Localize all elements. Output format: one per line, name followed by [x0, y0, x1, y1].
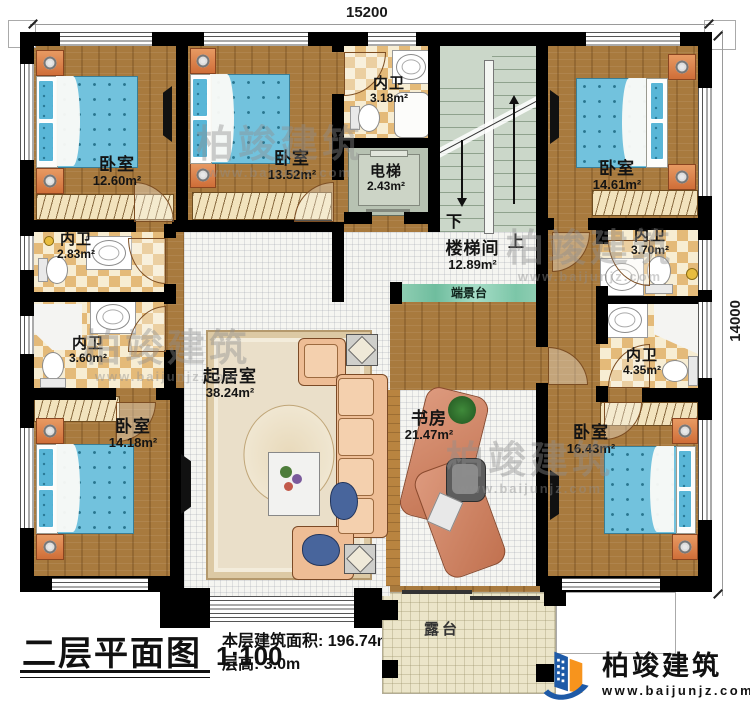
right-dimension-label: 14000	[727, 300, 744, 342]
wall	[176, 46, 188, 232]
room-label-bath-right2: 内卫 4.35m²	[606, 348, 678, 376]
wall	[354, 588, 382, 628]
brand-logo: 柏竣建筑 www.baijunjz.com	[540, 646, 750, 704]
nightstand	[672, 418, 698, 444]
nightstand	[672, 534, 698, 560]
person	[302, 534, 340, 566]
window	[698, 240, 712, 290]
flower-decor	[292, 474, 302, 484]
terrace-label: 露台	[424, 618, 494, 638]
nightstand	[36, 50, 64, 76]
terrace-outline-extension	[556, 592, 676, 654]
side-table	[344, 544, 376, 574]
nightstand	[190, 48, 216, 74]
pillow	[38, 80, 54, 120]
window	[20, 236, 34, 270]
platform-end-wall	[390, 282, 402, 304]
terrace-pillar	[382, 600, 398, 620]
room-label-bath-left2: 内卫 3.60m²	[56, 336, 120, 364]
wall	[600, 296, 700, 304]
wall	[596, 388, 604, 402]
nightstand	[36, 418, 64, 444]
room-label-bedroom-tl: 卧室 12.60m²	[82, 156, 152, 187]
side-table	[346, 334, 378, 366]
wall	[536, 383, 548, 586]
toilet	[647, 256, 671, 286]
window	[210, 596, 354, 624]
top-dimension-label: 15200	[346, 4, 388, 21]
pillow	[38, 489, 54, 528]
wardrobe	[592, 190, 698, 216]
platform-end-wall	[536, 282, 548, 304]
room-label-elevator: 电梯 2.43m²	[346, 164, 426, 192]
stair-down-arrowhead	[457, 198, 467, 207]
nightstand	[668, 164, 696, 190]
room-label-bath-left1: 内卫 2.83m²	[44, 232, 108, 260]
wall	[332, 222, 344, 302]
pillow	[192, 119, 208, 158]
flower-decor	[284, 482, 293, 491]
wall	[164, 224, 176, 238]
office-chair-seat	[452, 464, 478, 494]
window	[204, 32, 308, 46]
platform-label: 端景台	[402, 284, 536, 302]
stair-railing	[484, 60, 494, 234]
wall	[344, 212, 372, 224]
wall	[548, 218, 554, 230]
sink	[608, 307, 642, 333]
tv	[163, 86, 172, 142]
room-label-bedroom-tm: 卧室 13.52m²	[252, 150, 332, 181]
toilet-tank	[688, 356, 698, 386]
bed-sheet	[210, 74, 234, 162]
window	[368, 32, 416, 46]
wall	[160, 588, 210, 628]
tv	[181, 454, 191, 514]
pillow	[38, 122, 54, 162]
light-fixture	[686, 268, 698, 280]
bed-sheet	[56, 76, 80, 166]
wall	[20, 388, 116, 400]
plan-scale: 1:100	[216, 641, 283, 671]
pillow	[38, 448, 54, 487]
nightstand	[190, 162, 216, 188]
nightstand	[36, 534, 64, 560]
wall	[344, 138, 440, 148]
wall	[20, 292, 168, 302]
room-label-bath-top: 内卫 3.18m²	[352, 76, 426, 104]
sofa-cushion	[338, 378, 374, 416]
room-label-bedroom-bl: 卧室 14.18m²	[96, 418, 170, 449]
room-label-study: 书房 21.47m²	[395, 410, 463, 441]
room-label-bedroom-br: 卧室 16.43m²	[552, 424, 630, 455]
floor-plan-canvas: 15200 14000 下 上	[0, 0, 750, 718]
sliding-door	[470, 596, 540, 600]
title-block: 二层平面图1:100	[22, 626, 283, 675]
stair-down-arrow	[461, 140, 463, 198]
window	[52, 578, 148, 590]
toilet	[358, 104, 380, 132]
wall	[596, 230, 608, 244]
room-label-bedroom-tr: 卧室 14.61m²	[578, 160, 656, 191]
pillow	[650, 82, 664, 120]
window	[698, 88, 712, 196]
window	[20, 428, 34, 528]
stair-down-label: 下	[446, 208, 462, 232]
pillow	[650, 122, 664, 160]
tv	[550, 470, 559, 520]
pillow	[678, 490, 692, 528]
person	[330, 482, 358, 520]
wall	[164, 350, 176, 392]
top-dimension-line	[30, 24, 714, 25]
armchair-cushion	[304, 344, 338, 378]
window	[698, 302, 712, 378]
toilet-tank	[40, 378, 66, 388]
plan-title: 二层平面图	[22, 635, 202, 673]
window	[20, 316, 34, 354]
brand-logo-icon	[540, 646, 594, 704]
window	[586, 32, 680, 46]
bed-sheet	[650, 446, 674, 532]
room-label-stairwell: 楼梯间 12.89m²	[415, 240, 530, 271]
brand-name: 柏竣建筑	[602, 653, 750, 680]
brand-url: www.baijunjz.com	[602, 683, 750, 698]
nightstand	[668, 54, 696, 80]
wall	[332, 94, 344, 180]
flower-decor	[280, 466, 292, 478]
tv	[550, 90, 559, 144]
bed-sheet	[56, 444, 80, 532]
elevator-counterweight	[370, 150, 408, 157]
pillow	[678, 450, 692, 488]
room-label-bath-right1: 内卫 3.70m²	[614, 228, 686, 256]
stair-up-arrowhead	[509, 95, 519, 104]
right-dimension-line	[722, 30, 723, 596]
wall	[544, 588, 566, 606]
wall	[642, 388, 712, 402]
wall	[596, 286, 608, 344]
stair-up-arrow	[513, 104, 515, 204]
wall	[332, 46, 344, 52]
room-label-living: 起居室 38.24m²	[190, 368, 270, 399]
wall	[404, 212, 440, 224]
sofa-cushion	[338, 418, 374, 456]
pillow	[192, 78, 208, 117]
window	[562, 578, 660, 590]
window	[60, 32, 152, 46]
terrace-pillar	[382, 660, 398, 678]
sink	[96, 304, 130, 330]
coffee-table	[268, 452, 320, 516]
window	[20, 64, 34, 160]
bed-sheet	[622, 78, 646, 166]
terrace-floor	[382, 592, 556, 694]
sliding-door	[402, 590, 472, 594]
nightstand	[36, 168, 64, 194]
window	[698, 420, 712, 520]
